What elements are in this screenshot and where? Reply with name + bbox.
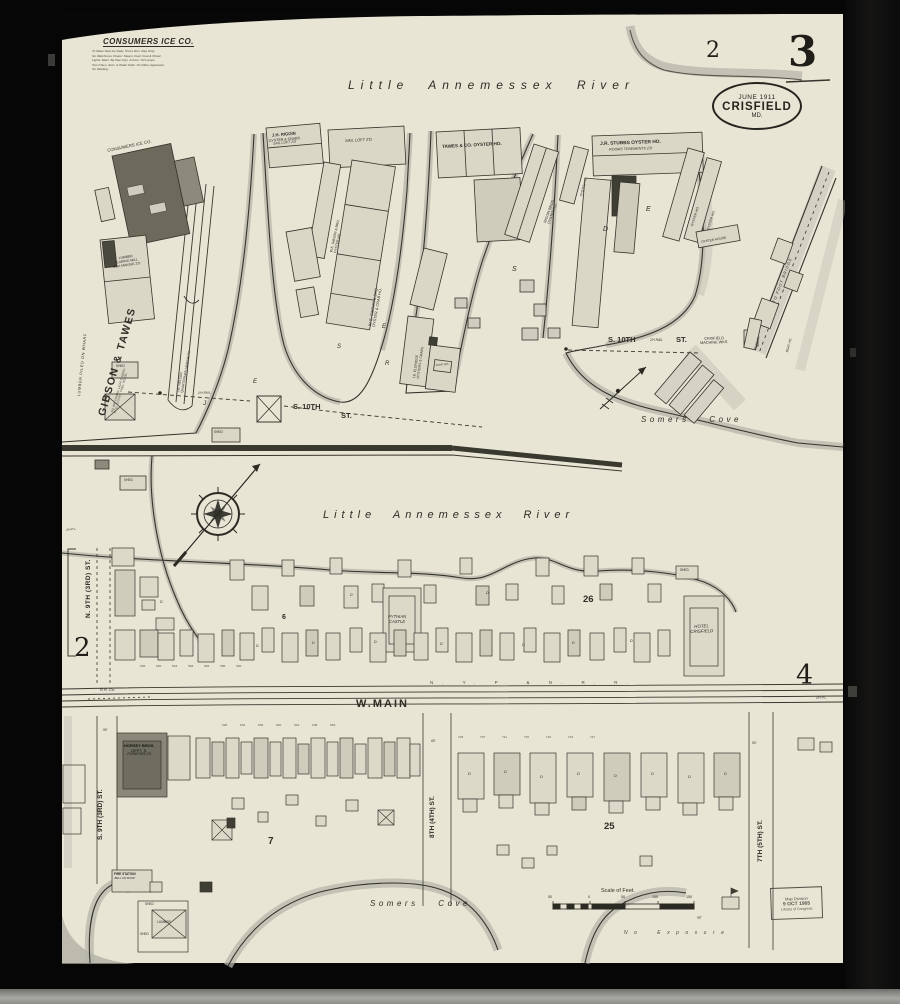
dwelling-letter: D: [440, 642, 443, 646]
lumber-yard-label: LUMBER: [157, 921, 171, 925]
dwelling-letter: D: [614, 774, 617, 778]
pole-line-note: 2'H P.L.: [816, 696, 827, 700]
dwelling-letter: D: [688, 775, 691, 779]
scale-tick: 50: [621, 895, 625, 899]
adjacent-sheet-2-left: 2: [74, 634, 91, 664]
e7th-street-label: 7TH (5TH) ST.: [757, 820, 764, 862]
ice-note-title: CONSUMERS ICE CO.: [103, 37, 194, 47]
nypn-railroad-letters: N. Y. P. & N. R. R.: [430, 680, 637, 685]
house-numbers-row: 628 632 636 640 644 648 652: [222, 724, 335, 728]
ice-note-line: To Make New Ice Daily. Hours Run: Day On…: [92, 50, 155, 54]
dwelling-letter: D: [540, 775, 543, 779]
dwelling-letter: D: [312, 641, 315, 645]
fire-station-label: FIRE STATION BELL ON ROOF: [114, 873, 136, 880]
adjacent-sheet-2-top: 2: [706, 38, 720, 63]
shed-label: SHED: [124, 479, 133, 483]
somers-cove-label: Somers Cove: [641, 415, 742, 424]
horsey-bros-label: HORSEY BROS. DEPT. S. FURNITURE 2'D: [124, 744, 155, 757]
crisfield-date-stamp: JUNE 1911 CRISFIELD MD.: [712, 82, 802, 130]
photo-bottom-strip: [0, 989, 900, 1004]
dimension-50ft: 50': [752, 742, 756, 746]
shed-label: SHED: [680, 569, 689, 573]
fire-station-line: BELL ON ROOF: [114, 877, 136, 880]
n9th-street-label: N. 9TH (3RD) ST.: [85, 559, 92, 618]
pythian-line: CASTLE: [388, 620, 406, 625]
dwelling-letter: D: [724, 772, 727, 776]
rail-gauge-note: 2'H RAIL: [198, 392, 211, 396]
dimension-50ft: 50': [103, 729, 107, 733]
dimension-65ft: 65': [431, 740, 435, 744]
stamp-state: MD.: [752, 113, 763, 119]
film-clip-mark: [850, 348, 856, 357]
dwelling-letter: D: [572, 641, 575, 645]
s9th-street-label: S. 9TH (3RD) ST.: [97, 789, 104, 840]
shed-label: SHED: [214, 431, 223, 435]
s10th-st-suffix: ST.: [341, 412, 352, 421]
dimension-50ft: 50': [697, 916, 702, 921]
section-letter: J: [203, 400, 206, 407]
section-letter: E: [646, 206, 651, 214]
block-number-7: 7: [268, 836, 274, 848]
s10th-street-label-east: S. 10TH: [608, 336, 636, 345]
ice-note-line: Lights: Elect. By Own Dyn. & Kero. Oil L…: [92, 59, 155, 63]
house-numbers-row: 536 540 544 548 552 556 560: [140, 665, 241, 669]
dwelling-letter: D: [486, 591, 489, 595]
sheet-number-3: 3: [788, 28, 817, 76]
film-clip-mark: [848, 686, 857, 697]
scale-title: Scale of Feet.: [601, 888, 635, 894]
block-number-25: 25: [604, 822, 615, 833]
dwelling-letter: D: [468, 772, 471, 776]
map-linework: [0, 0, 900, 1004]
s10th-street-label: S. 10TH: [293, 403, 321, 412]
river-label-middle: Little Annemessex River: [323, 509, 574, 522]
machine-works-label: CRISFIELD MACHINE WKS.: [700, 336, 729, 346]
shed-label: SHED: [145, 903, 154, 907]
dwelling-letter: D: [504, 770, 507, 774]
hotel-crisfield-label: HOTEL CRISFIELD: [690, 623, 713, 634]
no-exposure-label: No Exposure: [624, 931, 730, 937]
section-letter: S: [337, 344, 341, 351]
w-main-street-label: W.MAIN: [356, 698, 409, 711]
section-letter: E: [253, 379, 257, 386]
scale-tick: 0: [588, 895, 590, 899]
sanborn-map-photo: CONSUMERS ICE CO. To Make New Ice Daily.…: [0, 0, 900, 1004]
dwelling-letter: D: [651, 772, 654, 776]
s10th-st-suffix-east: ST.: [676, 336, 687, 345]
dwelling-letter: D: [256, 644, 259, 648]
dwelling-letter: D: [522, 643, 525, 647]
scale-tick: 100: [652, 895, 658, 899]
shed-label: SHED: [116, 365, 125, 369]
section-letter: D: [603, 226, 608, 234]
house-numbers-row: 703 707 711 715 719 723 727: [458, 736, 595, 740]
riggin-jh-label: J.H. RIGGIN OYSTER & CRABS SAIL LOFT 2'D: [268, 131, 301, 147]
dwelling-letter: D: [577, 772, 580, 776]
ice-note-line: No Welding.: [92, 68, 109, 72]
dwelling-letter: D: [160, 600, 163, 604]
river-label-top: Little Annemessex River: [348, 79, 635, 93]
e8th-street-label: 8TH (4TH) ST.: [429, 796, 436, 838]
pythian-castle-label: PYTHIAN CASTLE: [388, 615, 406, 625]
section-letter: R: [385, 361, 389, 368]
scale-tick: 50: [548, 895, 552, 899]
library-of-congress-stamp: Map Division 9 OCT 1965 Library of Congr…: [770, 886, 823, 920]
film-edge-right: [845, 0, 900, 1004]
scale-tick: 150: [686, 895, 692, 899]
dwelling-letter: D: [350, 593, 353, 597]
stamp-date: JUNE 1911: [738, 94, 775, 101]
film-clip-mark: [48, 54, 55, 66]
dwelling-letter: D: [374, 640, 377, 644]
horsey-line: FURNITURE 2'D: [124, 753, 155, 757]
shed-label: SHED: [140, 933, 149, 937]
section-letter: S: [512, 266, 517, 274]
stamp-city: CRISFIELD: [722, 101, 792, 113]
somers-cove-label-bottom: Somers Cove: [370, 899, 471, 908]
rr-co-note: R.R. Co.: [100, 688, 115, 693]
hotel-line: CRISFIELD: [690, 628, 713, 634]
rail-gauge-note: 2'H RAIL: [650, 339, 663, 343]
dwelling-letter: D: [630, 639, 633, 643]
section-letter: E: [382, 324, 386, 331]
adjacent-sheet-4-right: 4: [796, 660, 813, 691]
block-number-26: 26: [583, 595, 594, 606]
block-number-6: 6: [282, 614, 286, 622]
loc-stamp-line: Library of Congress: [781, 906, 812, 911]
